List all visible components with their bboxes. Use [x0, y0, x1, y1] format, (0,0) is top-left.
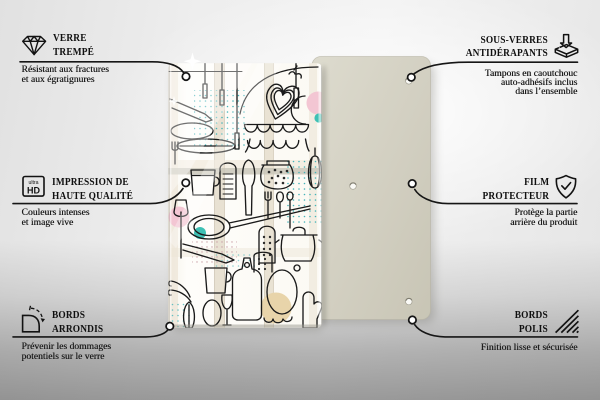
svg-text:HD: HD — [27, 185, 40, 195]
